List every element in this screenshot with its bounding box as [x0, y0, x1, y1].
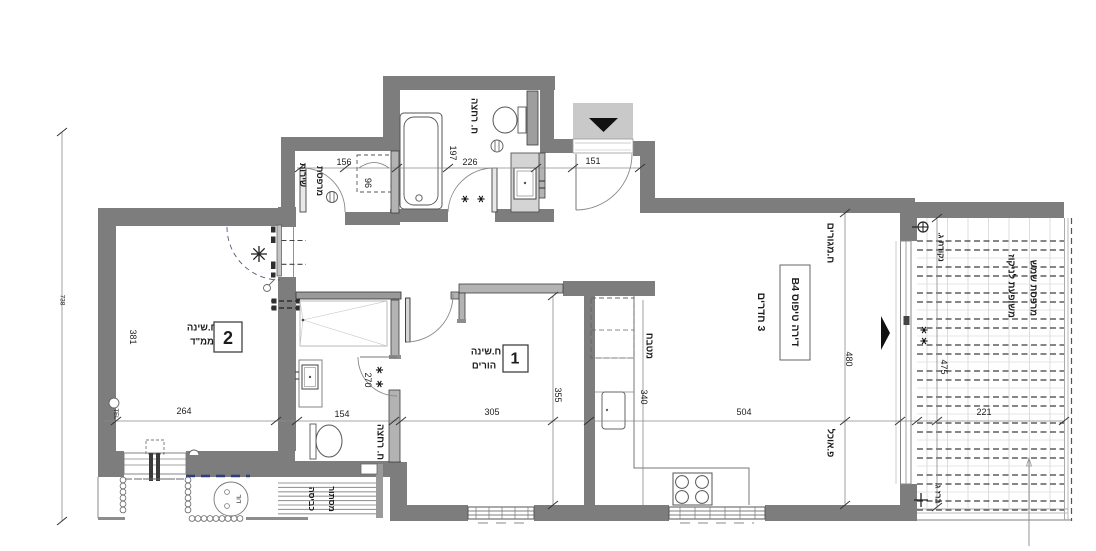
svg-text:ח. רחצה: ח. רחצה [375, 424, 386, 460]
svg-text:156: 156 [336, 157, 351, 167]
svg-text:3 חדרים: 3 חדרים [755, 293, 767, 332]
svg-text:ח.מגורים: ח.מגורים [825, 223, 836, 264]
svg-text:מסתור: מסתור [327, 486, 337, 512]
svg-text:1: 1 [511, 351, 520, 368]
svg-text:ממ"ד: ממ"ד [190, 337, 214, 348]
svg-text:96: 96 [363, 178, 373, 188]
svg-text:דירה טיפוס B4: דירה טיפוס B4 [789, 278, 801, 347]
svg-text:2: 2 [223, 328, 233, 348]
svg-text:נקודת ג.: נקודת ג. [937, 232, 946, 261]
svg-text:פ.אוכל: פ.אוכל [825, 429, 836, 458]
svg-text:154: 154 [334, 409, 349, 419]
svg-text:221: 221 [976, 407, 991, 417]
svg-text:ברז ג.: ברז ג. [934, 482, 943, 503]
svg-text:כביסה: כביסה [307, 487, 317, 511]
svg-text:דוד: דוד [235, 495, 242, 504]
svg-text:355: 355 [553, 387, 563, 402]
svg-text:738: 738 [59, 295, 66, 306]
svg-text:מרפסת: מרפסת [315, 166, 325, 196]
svg-text:151: 151 [585, 156, 600, 166]
svg-text:197: 197 [448, 145, 458, 160]
svg-text:270: 270 [363, 372, 373, 387]
svg-text:504: 504 [736, 407, 751, 417]
svg-text:שירות: שירות [298, 163, 308, 187]
svg-text:340: 340 [639, 389, 649, 404]
svg-text:480: 480 [844, 351, 854, 366]
svg-text:הורים: הורים [472, 361, 496, 372]
svg-text:226: 226 [462, 157, 477, 167]
svg-text:TEL: TEL [112, 408, 118, 420]
svg-text:475: 475 [939, 359, 949, 374]
svg-text:ח.שינה: ח.שינה [187, 323, 217, 334]
svg-text:305: 305 [484, 407, 499, 417]
svg-text:381: 381 [128, 329, 138, 344]
svg-text:ח.שינה: ח.שינה [471, 347, 501, 358]
svg-text:משופעת לניקוז: משופעת לניקוז [1006, 254, 1017, 318]
svg-text:264: 264 [176, 406, 191, 416]
svg-text:ח. רחצה: ח. רחצה [469, 98, 480, 134]
svg-text:מרפסת שמש: מרפסת שמש [1028, 260, 1039, 316]
svg-text:מטבח: מטבח [644, 333, 655, 359]
